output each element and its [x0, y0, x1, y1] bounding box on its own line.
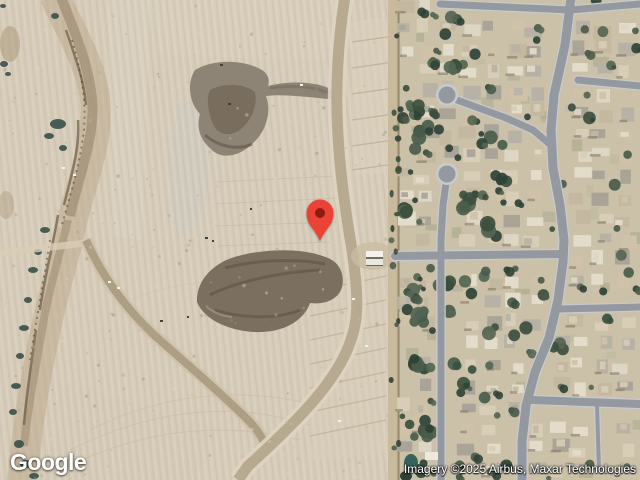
neighborhood-art	[388, 0, 640, 480]
pin-dot	[315, 208, 325, 218]
imagery-attribution: Imagery ©2025 Airbus, Maxar Technologies	[404, 462, 636, 476]
google-logo[interactable]: Google	[10, 449, 86, 476]
map-pin-icon	[304, 195, 336, 243]
map-pin[interactable]	[304, 195, 336, 243]
map-viewport[interactable]: Google Imagery ©2025 Airbus, Maxar Techn…	[0, 0, 640, 480]
pin-body	[307, 200, 334, 242]
construction-trailers	[366, 251, 383, 266]
